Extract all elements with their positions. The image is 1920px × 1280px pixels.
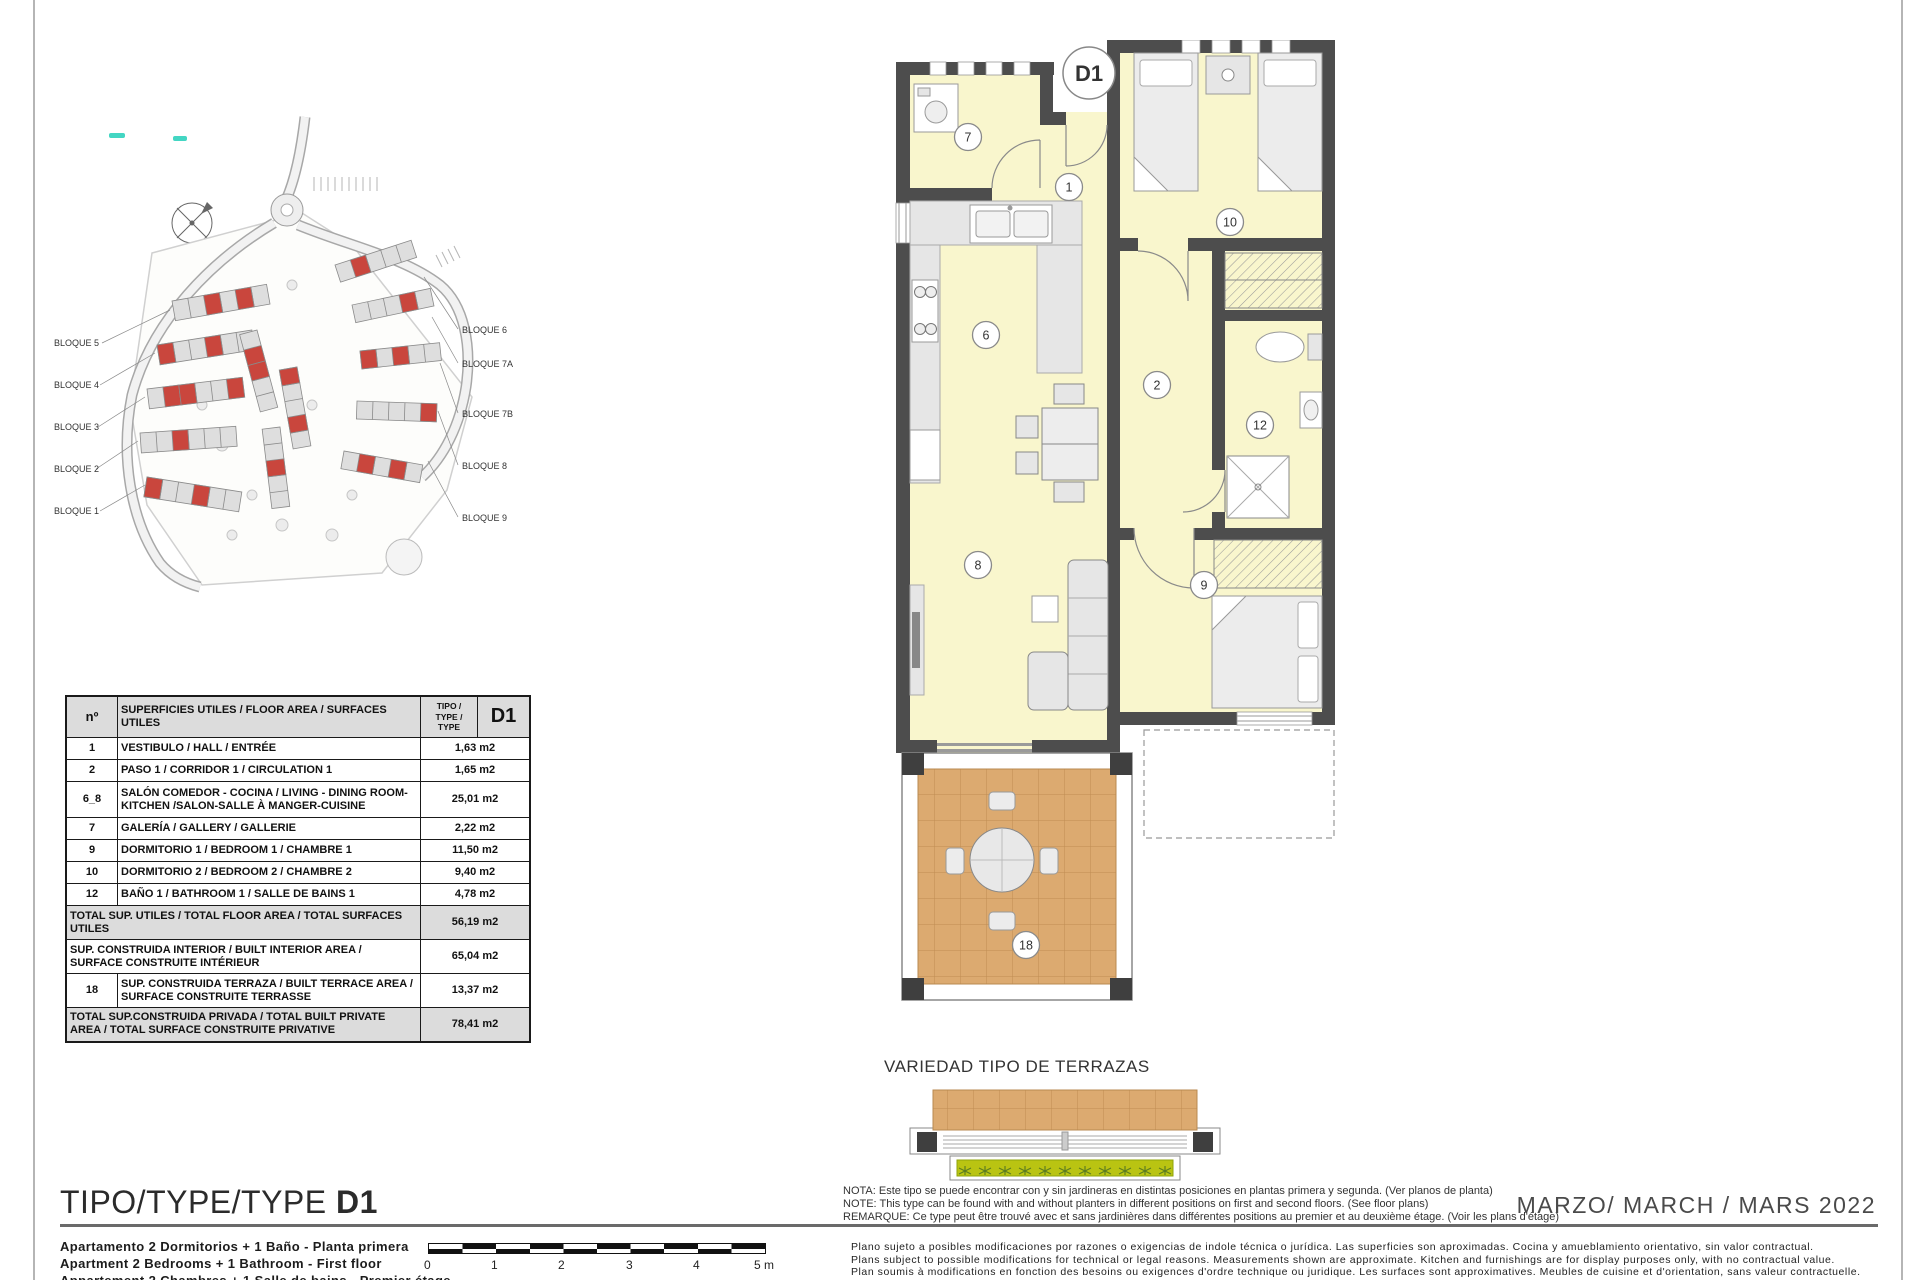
teal-mark-icon [173,136,187,141]
type-line: TYPE [438,722,460,733]
double-bed [1212,596,1322,708]
block-label: BLOQUE 4 [54,380,99,390]
alternative-outline [1144,730,1334,838]
legal-disclaimer: Plano sujeto a posibles modificaciones p… [851,1241,1865,1279]
column-header-no: nº [66,696,118,738]
kitchen-sink [970,205,1052,243]
disclaimer-line: Plans subject to possible modifications … [851,1254,1865,1267]
block-label: BLOQUE 2 [54,464,99,474]
terrace-note-block: NOTA: Este tipo se puede encontrar con y… [843,1185,1533,1224]
room-number: 2 [1154,379,1161,393]
row-no: 2 [66,760,118,782]
floor-plan: D1 7 1 10 6 2 12 8 9 18 [882,40,1340,1030]
block-label: BLOQUE 6 [462,325,507,335]
row-desc: DORMITORIO 1 / BEDROOM 1 / CHAMBRE 1 [118,840,421,862]
room-number: 18 [1019,939,1033,953]
descriptor-line: Apartamento 2 Dormitorios + 1 Baño - Pla… [60,1238,451,1255]
terrace [902,753,1132,1000]
room-number: 12 [1253,419,1267,433]
site-plan: BLOQUE 5 BLOQUE 4 BLOQUE 3 BLOQUE 2 BLOQ… [52,105,527,625]
block-label: BLOQUE 9 [462,513,507,523]
total-desc: TOTAL SUP. UTILES / TOTAL FLOOR AREA / T… [66,906,421,940]
scale-labels: 0 1 2 3 4 5 m [420,1258,780,1272]
total-value: 78,41 m2 [421,1008,531,1042]
type-code: D1 [478,697,529,737]
block-label: BLOQUE 7B [462,409,513,419]
wardrobe [1225,253,1322,308]
block-label: BLOQUE 5 [54,338,99,348]
sheet-title: TIPO/TYPE/TYPE D1 [60,1184,378,1221]
shower [1227,456,1289,518]
row-desc: GALERÍA / GALLERY / GALLERIE [118,818,421,840]
unit-badge: D1 [1063,47,1115,99]
twin-bed [1134,53,1198,191]
sheet-date: MARZO/ MARCH / MARS 2022 [1517,1192,1876,1219]
column-header-type: TIPO / TYPE / TYPE D1 [421,696,531,738]
post [917,1132,937,1152]
scale-tick: 0 [424,1258,431,1272]
hob [912,280,938,342]
row-no: 10 [66,862,118,884]
table-row: 2 PASO 1 / CORRIDOR 1 / CIRCULATION 1 1,… [66,760,530,782]
teal-mark-icon [109,133,125,138]
twin-bed [1258,53,1322,191]
type-stack: TIPO / TYPE / TYPE [421,697,478,737]
type-line: TIPO / [437,701,462,712]
row-value: 13,37 m2 [421,974,531,1008]
scale-tick: 4 [693,1258,700,1272]
row-value: 2,22 m2 [421,818,531,840]
table-row: 1 VESTIBULO / HALL / ENTRÉE 1,63 m2 [66,738,530,760]
note-line: NOTA: Este tipo se puede encontrar con y… [843,1185,1533,1198]
block-label: BLOQUE 8 [462,461,507,471]
washing-machine [914,84,958,132]
table-row: 12 BAÑO 1 / BATHROOM 1 / SALLE DE BAINS … [66,884,530,906]
type-line: TYPE / [436,712,463,723]
row-no: 6_8 [66,782,118,818]
scale-bar [428,1243,766,1254]
post [1193,1132,1213,1152]
row-no: 12 [66,884,118,906]
areas-table: nº SUPERFICIES UTILES / FLOOR AREA / SUR… [65,695,531,1043]
note-line: NOTE: This type can be found with and wi… [843,1198,1533,1211]
table-total-row: TOTAL SUP. UTILES / TOTAL FLOOR AREA / T… [66,906,530,940]
plan-sheet: BLOQUE 5 BLOQUE 4 BLOQUE 3 BLOQUE 2 BLOQ… [0,0,1920,1280]
planter [950,1156,1180,1180]
row-value: 1,65 m2 [421,760,531,782]
table-total-row: SUP. CONSTRUIDA INTERIOR / BUILT INTERIO… [66,940,530,974]
total-value: 56,19 m2 [421,906,531,940]
table-row: 10 DORMITORIO 2 / BEDROOM 2 / CHAMBRE 2 … [66,862,530,884]
terrace-variant-drawing [895,1082,1235,1182]
toilet [1256,332,1322,362]
wardrobe [1214,540,1322,588]
room-number: 10 [1223,216,1237,230]
fridge [910,430,940,480]
descriptor-line: Appartement 2 Chambres + 1 Salle de bain… [60,1272,451,1280]
roundabout [386,539,422,575]
row-value: 9,40 m2 [421,862,531,884]
tv-unit [910,585,924,695]
table-total-row: TOTAL SUP.CONSTRUIDA PRIVADA / TOTAL BUI… [66,1008,530,1042]
footer-rule [60,1224,1878,1227]
total-desc: TOTAL SUP.CONSTRUIDA PRIVADA / TOTAL BUI… [66,1008,421,1042]
note-line: REMARQUE: Ce type peut être trouvé avec … [843,1211,1533,1224]
terrace-variant-title: VARIEDAD TIPO DE TERRAZAS [884,1057,1150,1077]
row-desc: SUP. CONSTRUIDA TERRAZA / BUILT TERRACE … [118,974,421,1008]
table-row: 9 DORMITORIO 1 / BEDROOM 1 / CHAMBRE 1 1… [66,840,530,862]
page-frame-left [33,0,35,1280]
sheet-title-code: D1 [336,1184,378,1220]
apartment-descriptor: Apartamento 2 Dormitorios + 1 Baño - Pla… [60,1238,451,1280]
sheet-title-label: TIPO/TYPE/TYPE [60,1184,336,1220]
row-value: 25,01 m2 [421,782,531,818]
table-header-row: nº SUPERFICIES UTILES / FLOOR AREA / SUR… [66,696,530,738]
nightstand [1206,56,1250,94]
scale-tick: 5 m [754,1258,774,1272]
row-no: 7 [66,818,118,840]
disclaimer-line: Plan soumis à modifications en fonction … [851,1266,1865,1279]
row-no: 18 [66,974,118,1008]
block-label: BLOQUE 1 [54,506,99,516]
column-header-desc: SUPERFICIES UTILES / FLOOR AREA / SURFAC… [118,696,421,738]
row-value: 4,78 m2 [421,884,531,906]
table-row: 18 SUP. CONSTRUIDA TERRAZA / BUILT TERRA… [66,974,530,1008]
room-number: 7 [965,131,972,145]
row-desc: SALÓN COMEDOR - COCINA / LIVING - DINING… [118,782,421,818]
block-label: BLOQUE 3 [54,422,99,432]
table-row: 7 GALERÍA / GALLERY / GALLERIE 2,22 m2 [66,818,530,840]
row-desc: VESTIBULO / HALL / ENTRÉE [118,738,421,760]
total-value: 65,04 m2 [421,940,531,974]
scale-tick: 3 [626,1258,633,1272]
terrace-tiles [933,1090,1197,1130]
table-row: 6_8 SALÓN COMEDOR - COCINA / LIVING - DI… [66,782,530,818]
room-number: 6 [983,329,990,343]
row-no: 1 [66,738,118,760]
row-desc: DORMITORIO 2 / BEDROOM 2 / CHAMBRE 2 [118,862,421,884]
building-row-bloque8 [356,401,437,422]
unit-label: D1 [1075,61,1103,86]
row-desc: PASO 1 / CORRIDOR 1 / CIRCULATION 1 [118,760,421,782]
scale-tick: 2 [558,1258,565,1272]
scale-tick: 1 [491,1258,498,1272]
row-value: 1,63 m2 [421,738,531,760]
disclaimer-line: Plano sujeto a posibles modificaciones p… [851,1241,1865,1254]
block-label: BLOQUE 7A [462,359,513,369]
page-frame-right [1901,0,1903,1280]
row-desc: BAÑO 1 / BATHROOM 1 / SALLE DE BAINS 1 [118,884,421,906]
row-no: 9 [66,840,118,862]
compass-icon [172,202,213,243]
row-value: 11,50 m2 [421,840,531,862]
descriptor-line: Apartment 2 Bedrooms + 1 Bathroom - Firs… [60,1255,451,1272]
room-number: 9 [1201,579,1208,593]
room-number: 8 [975,559,982,573]
room-number: 1 [1066,181,1073,195]
total-desc: SUP. CONSTRUIDA INTERIOR / BUILT INTERIO… [66,940,421,974]
washbasin [1300,392,1322,428]
